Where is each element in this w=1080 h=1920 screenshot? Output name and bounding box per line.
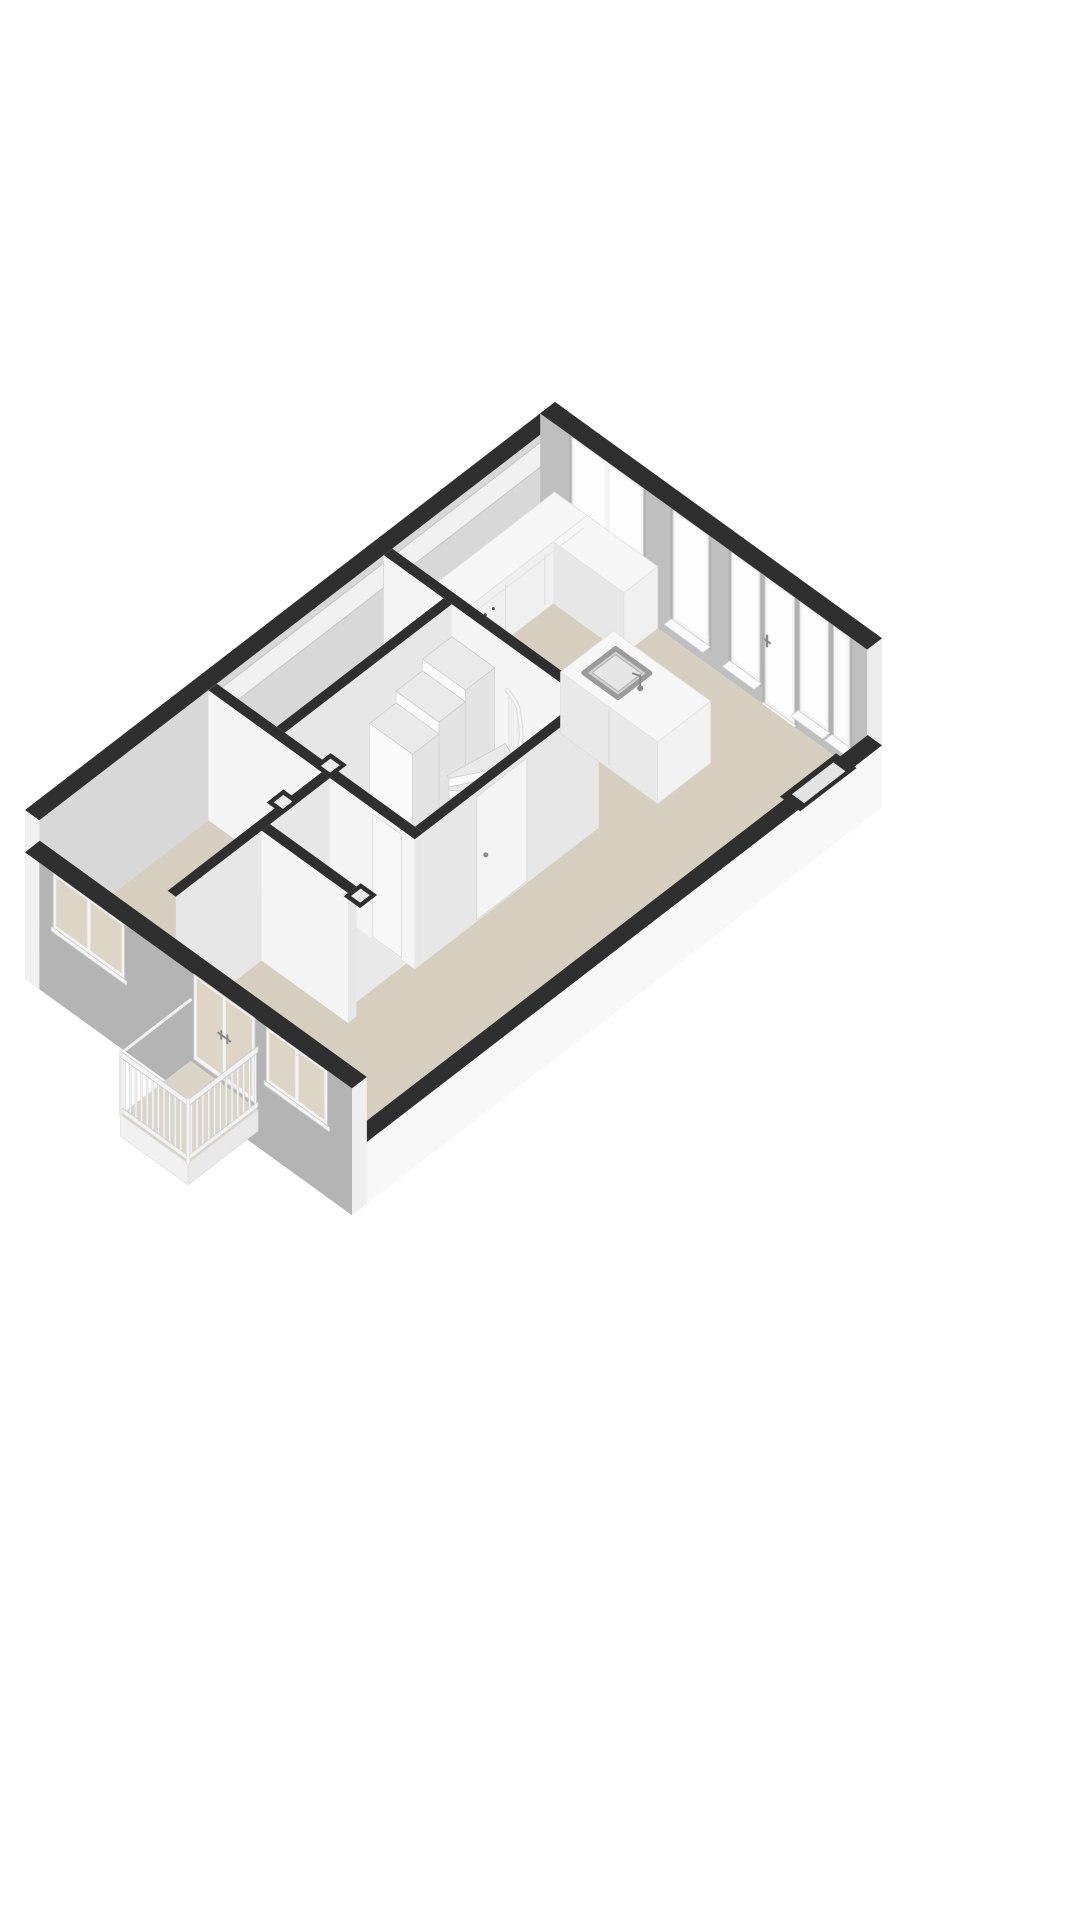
floorplan-canvas (0, 0, 1080, 1920)
floorplan-page (0, 0, 1080, 1920)
